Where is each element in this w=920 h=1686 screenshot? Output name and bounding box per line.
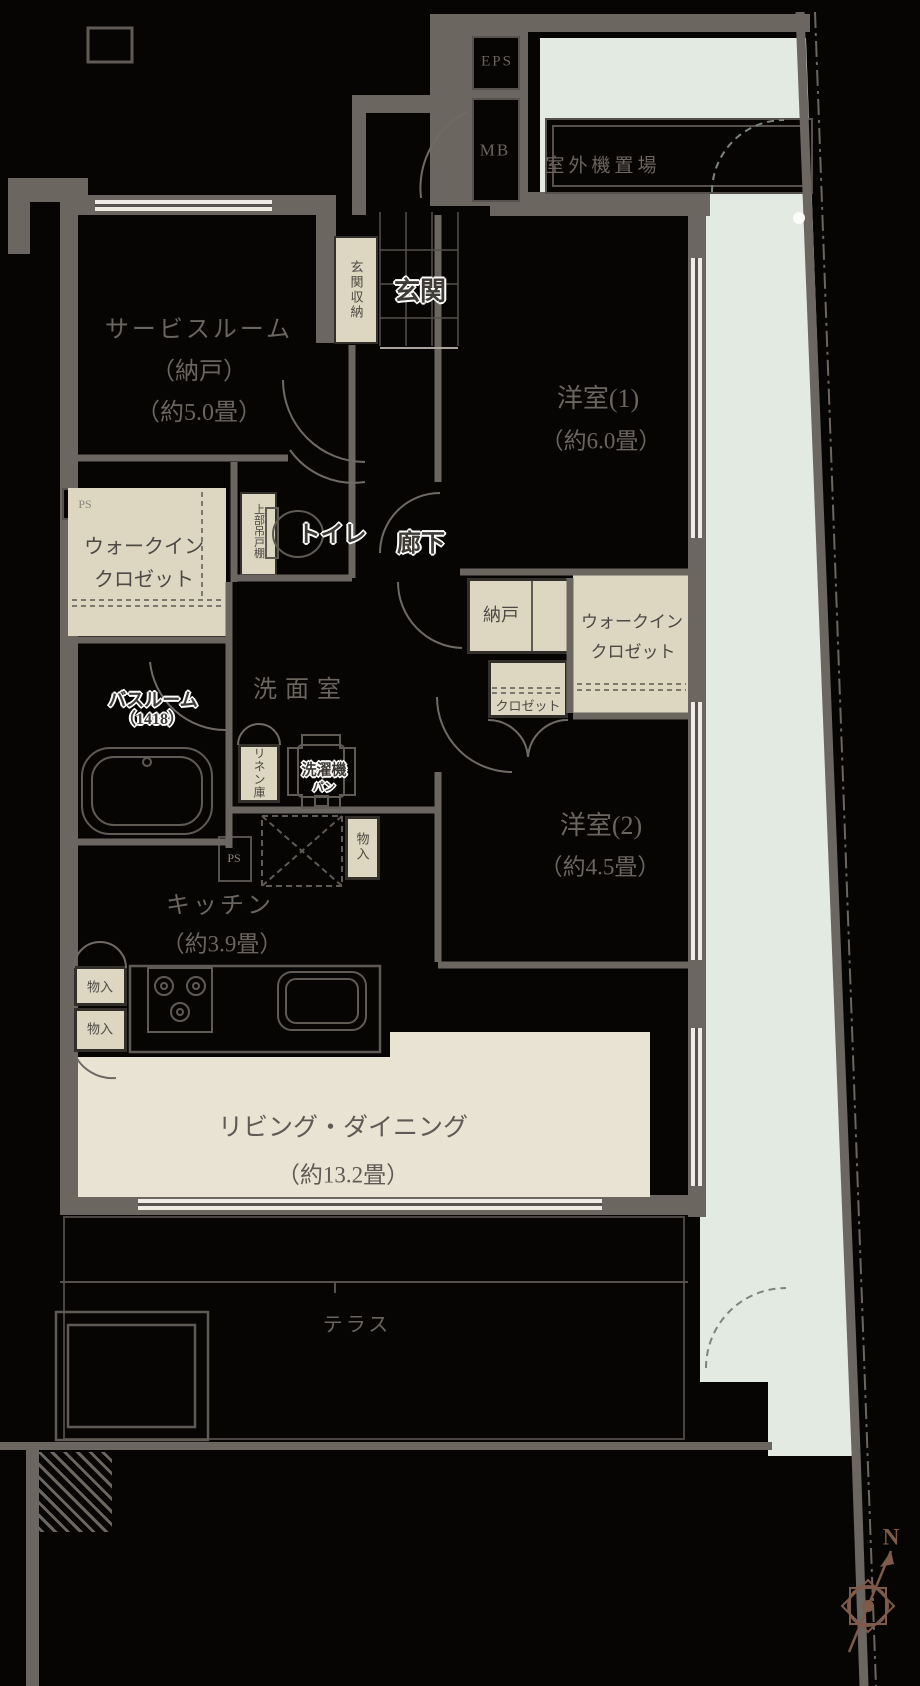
site-walls (800, 12, 876, 1686)
bathroom-label: バスルーム (108, 691, 197, 709)
entrance-door-arc (420, 112, 467, 198)
service-room-label: サービスルーム (105, 318, 293, 342)
ps-kitchen-label: PS (227, 852, 240, 864)
entrance-label: 玄関 (394, 279, 446, 305)
eps-label: EPS (481, 55, 513, 70)
entrance-storage-label: 玄関収納 (350, 260, 363, 320)
monoire-washer-label: 物入 (356, 832, 369, 862)
kitchen-monoire-arc-left (74, 942, 100, 968)
western1-size: （約6.0畳） (541, 430, 662, 453)
stove-burners (155, 977, 205, 1021)
closet-label: クロゼット (495, 700, 560, 713)
western2-size: （約4.5畳） (540, 856, 661, 879)
hanger-rails (72, 492, 686, 693)
monoire-kitchen-label-2: 物入 (87, 1023, 113, 1036)
stove-icon (148, 968, 212, 1032)
refrigerator-space-icon (262, 816, 342, 886)
compass-rose-icon (842, 1551, 894, 1652)
balcony-door-arcs (706, 120, 786, 1368)
floor-plan: EPS MB 室外機置場 玄関 玄関収納 サービスルーム （納戸） （約5.0畳… (0, 0, 920, 1686)
bathroom-size: （1418） (120, 712, 184, 728)
site-dot (793, 212, 805, 224)
living-dining-size: （約13.2畳） (277, 1164, 409, 1187)
western1-label: 洋室(1) (557, 386, 639, 412)
outdoor-unit-label: 室外機置場 (545, 157, 660, 176)
door-arcs (74, 112, 568, 1078)
service-room-sub2: （約5.0畳） (136, 401, 262, 425)
upper-cabinet-label: 上部吊戸棚 (253, 504, 264, 559)
kitchen-size: （約3.9畳） (162, 933, 283, 956)
toilet-tank-icon (266, 508, 278, 558)
living-dining-label: リビング・ダイニング (218, 1116, 468, 1141)
kitchen-monoire-arc-right (100, 942, 126, 968)
closet-fold-arc-left (488, 720, 528, 757)
linen-arc-right (259, 724, 280, 745)
linen-arc-left (238, 724, 259, 745)
washroom-door-arc (398, 582, 462, 648)
washer-pan-label-2: パン (313, 783, 336, 794)
terrace-steps-inner (68, 1325, 195, 1427)
linen-label: リネン庫 (253, 747, 265, 799)
closet-fold-arc-right (528, 720, 568, 757)
nando-label: 納戸 (483, 606, 519, 624)
wic-right-label-2: クロゼット (591, 644, 676, 661)
western2-label: 洋室(2) (560, 813, 642, 839)
linework-layer (0, 0, 920, 1686)
wic-right-label-1: ウォークイン (581, 614, 683, 631)
monoire-kitchen-label-1: 物入 (87, 981, 113, 994)
ps-upper-label: PS (78, 498, 91, 510)
wic-left-label-1: ウォークイン (84, 537, 204, 557)
washroom-label: 洗面室 (253, 678, 349, 702)
site-corner-mark (88, 28, 132, 62)
kitchen-label: キッチン (166, 894, 274, 918)
compass-north-label: N (883, 1526, 900, 1549)
terrace-label: テラス (323, 1315, 392, 1335)
mb-label: MB (480, 142, 510, 159)
terrace-steps-outer (56, 1312, 208, 1440)
fixtures (56, 28, 688, 1440)
corridor-label: 廊下 (397, 532, 445, 556)
toilet-label: トイレ (298, 523, 367, 546)
washer-pan-label-1: 洗濯機 (301, 764, 346, 779)
living-door-arc (74, 1053, 116, 1078)
service-room-sub1: （納戸） (151, 360, 247, 384)
wic-left-label-2: クロゼット (94, 570, 194, 590)
